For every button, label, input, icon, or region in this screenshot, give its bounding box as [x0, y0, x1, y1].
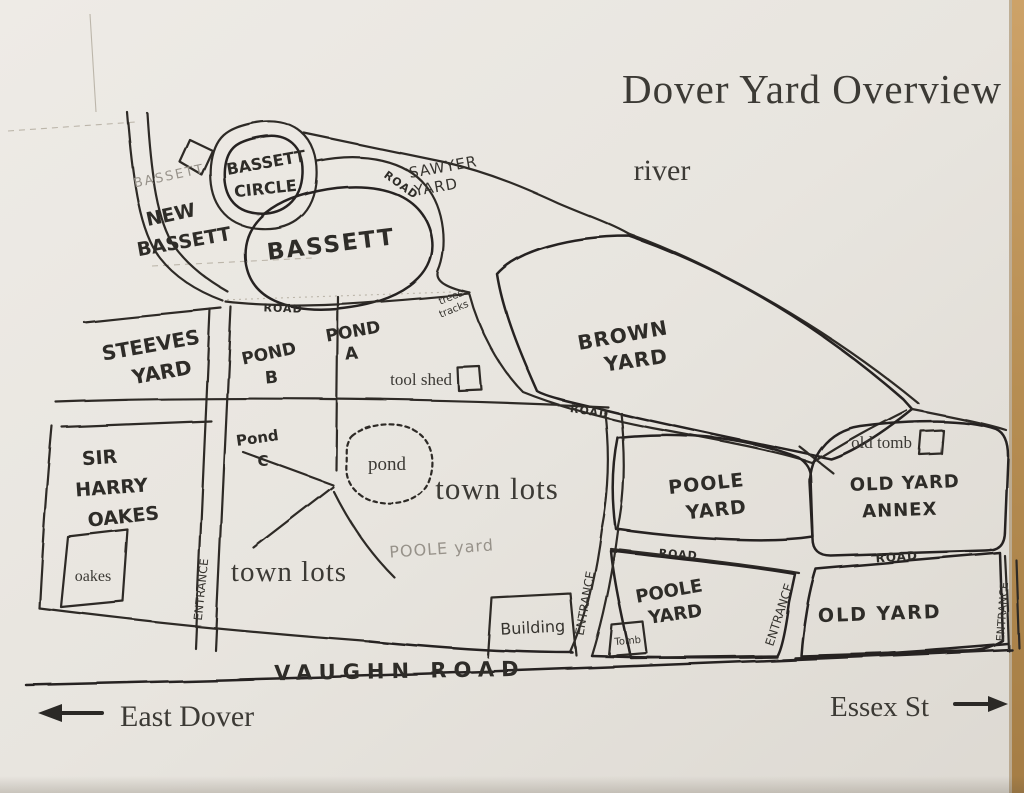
- road-label: ROAD: [263, 301, 303, 315]
- pond-a-label: A: [344, 343, 360, 364]
- paper-edge-line: [1009, 0, 1012, 793]
- building-label: Building: [500, 616, 566, 638]
- oakes-box-label: oakes: [75, 568, 111, 585]
- pond-label: pond: [368, 454, 407, 475]
- essex-st-label: Essex St: [830, 691, 929, 723]
- page-title: Dover Yard Overview: [622, 66, 1002, 112]
- east-dover-label: East Dover: [120, 700, 254, 733]
- road-label: ROAD: [875, 549, 918, 566]
- pond-b-label: B: [264, 367, 279, 388]
- tool-shed-label: tool shed: [390, 370, 452, 389]
- vaughn-road-label: VAUGHN ROAD: [274, 657, 526, 685]
- road-label: ROAD: [658, 547, 698, 563]
- photo-bottom-shadow: [0, 776, 1024, 793]
- old-yard-annex-label: OLD YARD: [849, 471, 960, 496]
- photo-edge-strip: [1012, 0, 1024, 793]
- scanned-map-photo: Dover Yard Overview river tool shed old …: [0, 0, 1024, 793]
- pond-c-label: C: [257, 452, 268, 470]
- town-lots-label-east: town lots: [435, 471, 559, 506]
- old-tomb-label: old tomb: [851, 433, 912, 452]
- old-yard-annex-label: ANNEX: [862, 499, 938, 523]
- town-lots-label-west: town lots: [231, 556, 347, 588]
- sir-harry-oakes-label: SIR: [81, 446, 118, 470]
- dover-yard-map: Dover Yard Overview river tool shed old …: [0, 0, 1024, 793]
- old-yard-label: OLD YARD: [818, 601, 942, 627]
- river-label: river: [634, 154, 691, 187]
